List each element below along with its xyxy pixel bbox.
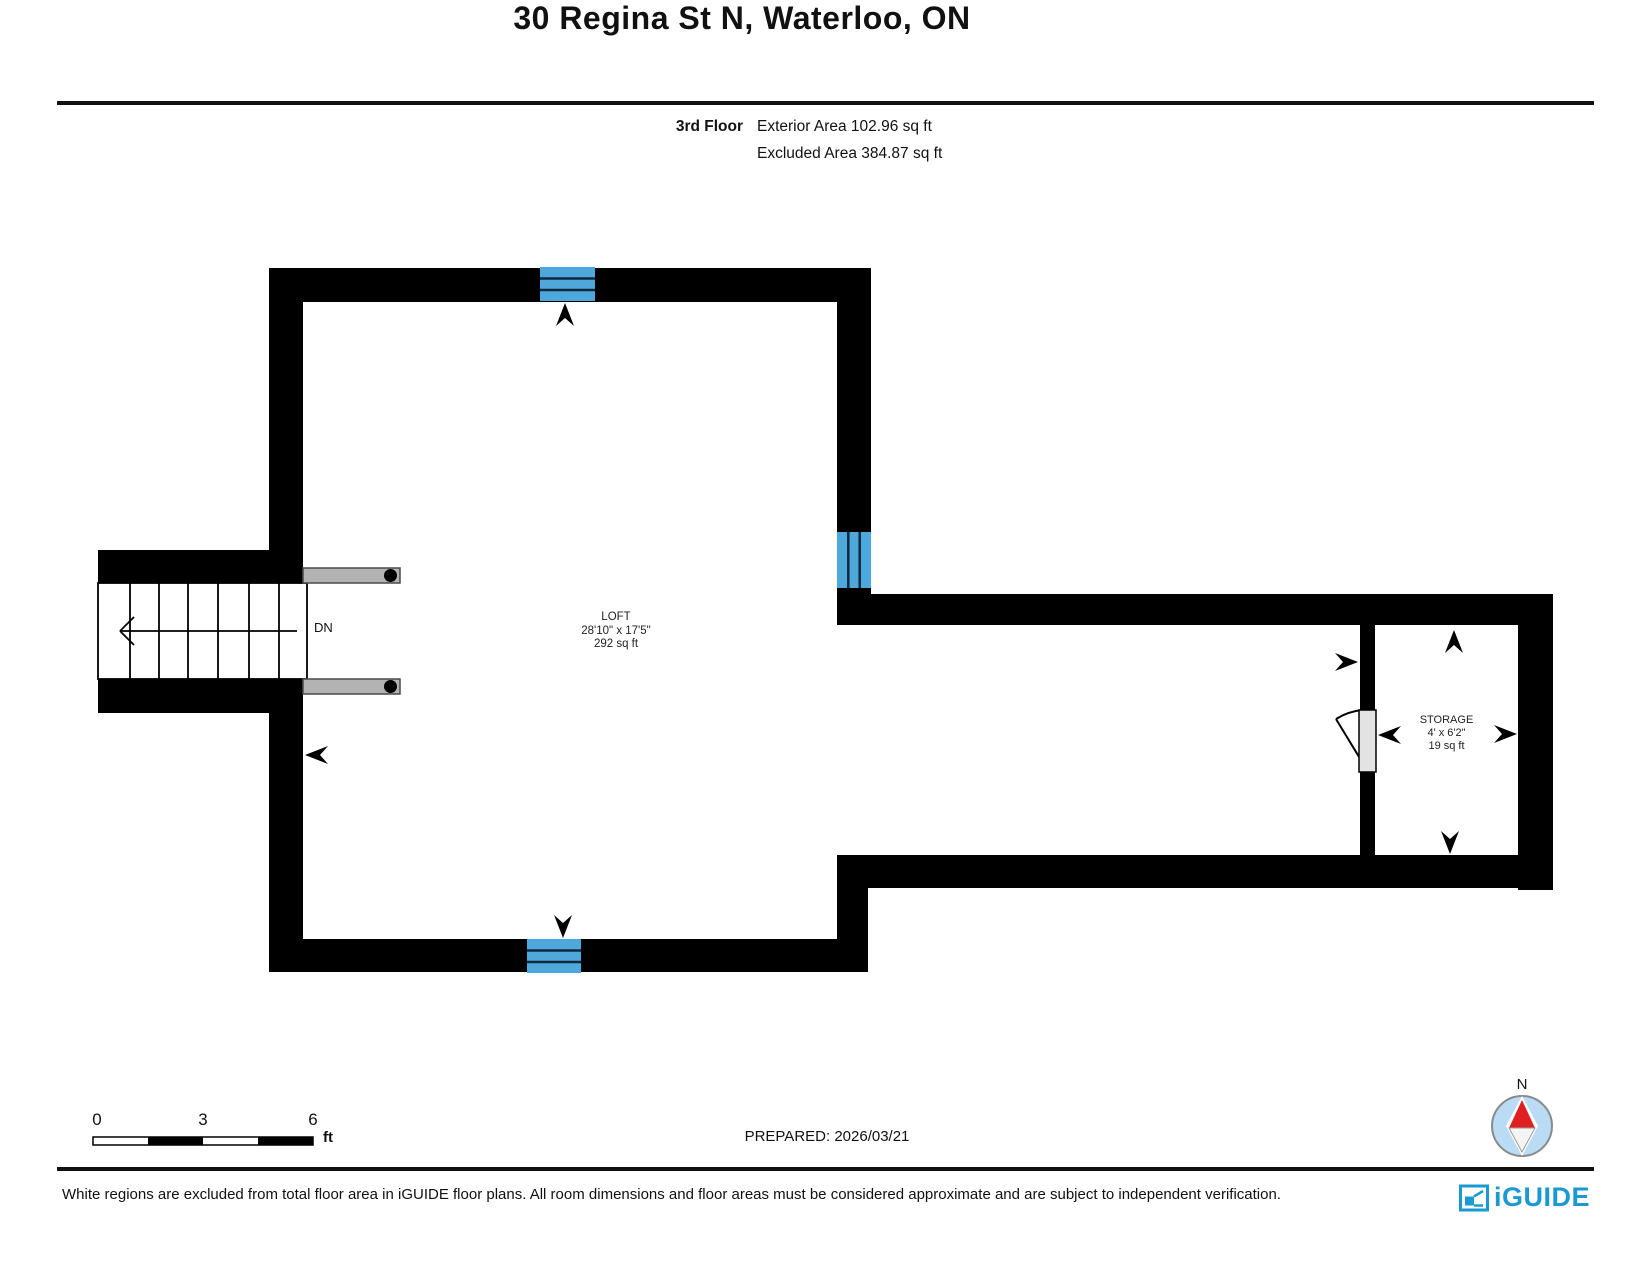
scale-unit: ft <box>323 1129 333 1146</box>
window-bottom <box>527 939 581 973</box>
storage-door <box>1336 710 1376 772</box>
arrow-left-loft <box>305 746 328 764</box>
staircase <box>98 583 307 679</box>
storage-label: STORAGE 4' x 6'2" 19 sq ft <box>1376 714 1517 753</box>
loft-area: 292 sq ft <box>516 638 716 652</box>
railing-bottom-post <box>384 680 397 693</box>
footer-disclaimer: White regions are excluded from total fl… <box>62 1186 1312 1203</box>
loft-dimensions: 28'10" x 17'5" <box>516 625 716 639</box>
scale-tick-0: 0 <box>82 1110 112 1130</box>
compass-north-label: N <box>1502 1076 1542 1093</box>
floorplan-page: 30 Regina St N, Waterloo, ON 3rd Floor E… <box>0 0 1650 1275</box>
window-right <box>837 532 871 588</box>
loft-name: LOFT <box>516 611 716 625</box>
compass <box>1492 1096 1552 1156</box>
scale-tick-3: 3 <box>188 1110 218 1130</box>
stairs-dn-label: DN <box>314 620 333 635</box>
arrow-down-bottom-window <box>554 915 572 938</box>
loft-label: LOFT 28'10" x 17'5" 292 sq ft <box>516 611 716 652</box>
window-top <box>540 267 595 301</box>
storage-dimensions: 4' x 6'2" <box>1376 727 1517 740</box>
arrow-up-storage <box>1445 630 1463 653</box>
iguide-logo-icon <box>1458 1182 1490 1214</box>
railing-top-post <box>384 569 397 582</box>
scale-bar <box>93 1137 313 1145</box>
footer-divider <box>57 1167 1594 1171</box>
arrow-down-storage <box>1441 831 1459 854</box>
iguide-logo-text: iGUIDE <box>1494 1182 1590 1213</box>
floorplan-drawing <box>0 0 1650 1275</box>
scale-tick-6: 6 <box>298 1110 328 1130</box>
storage-area: 19 sq ft <box>1376 740 1517 753</box>
iguide-logo: iGUIDE <box>1458 1180 1598 1216</box>
arrow-up-top-window <box>556 303 574 326</box>
prepared-date: PREPARED: 2026/03/21 <box>697 1128 957 1145</box>
arrow-right-at-partition <box>1335 653 1358 671</box>
storage-name: STORAGE <box>1376 714 1517 727</box>
